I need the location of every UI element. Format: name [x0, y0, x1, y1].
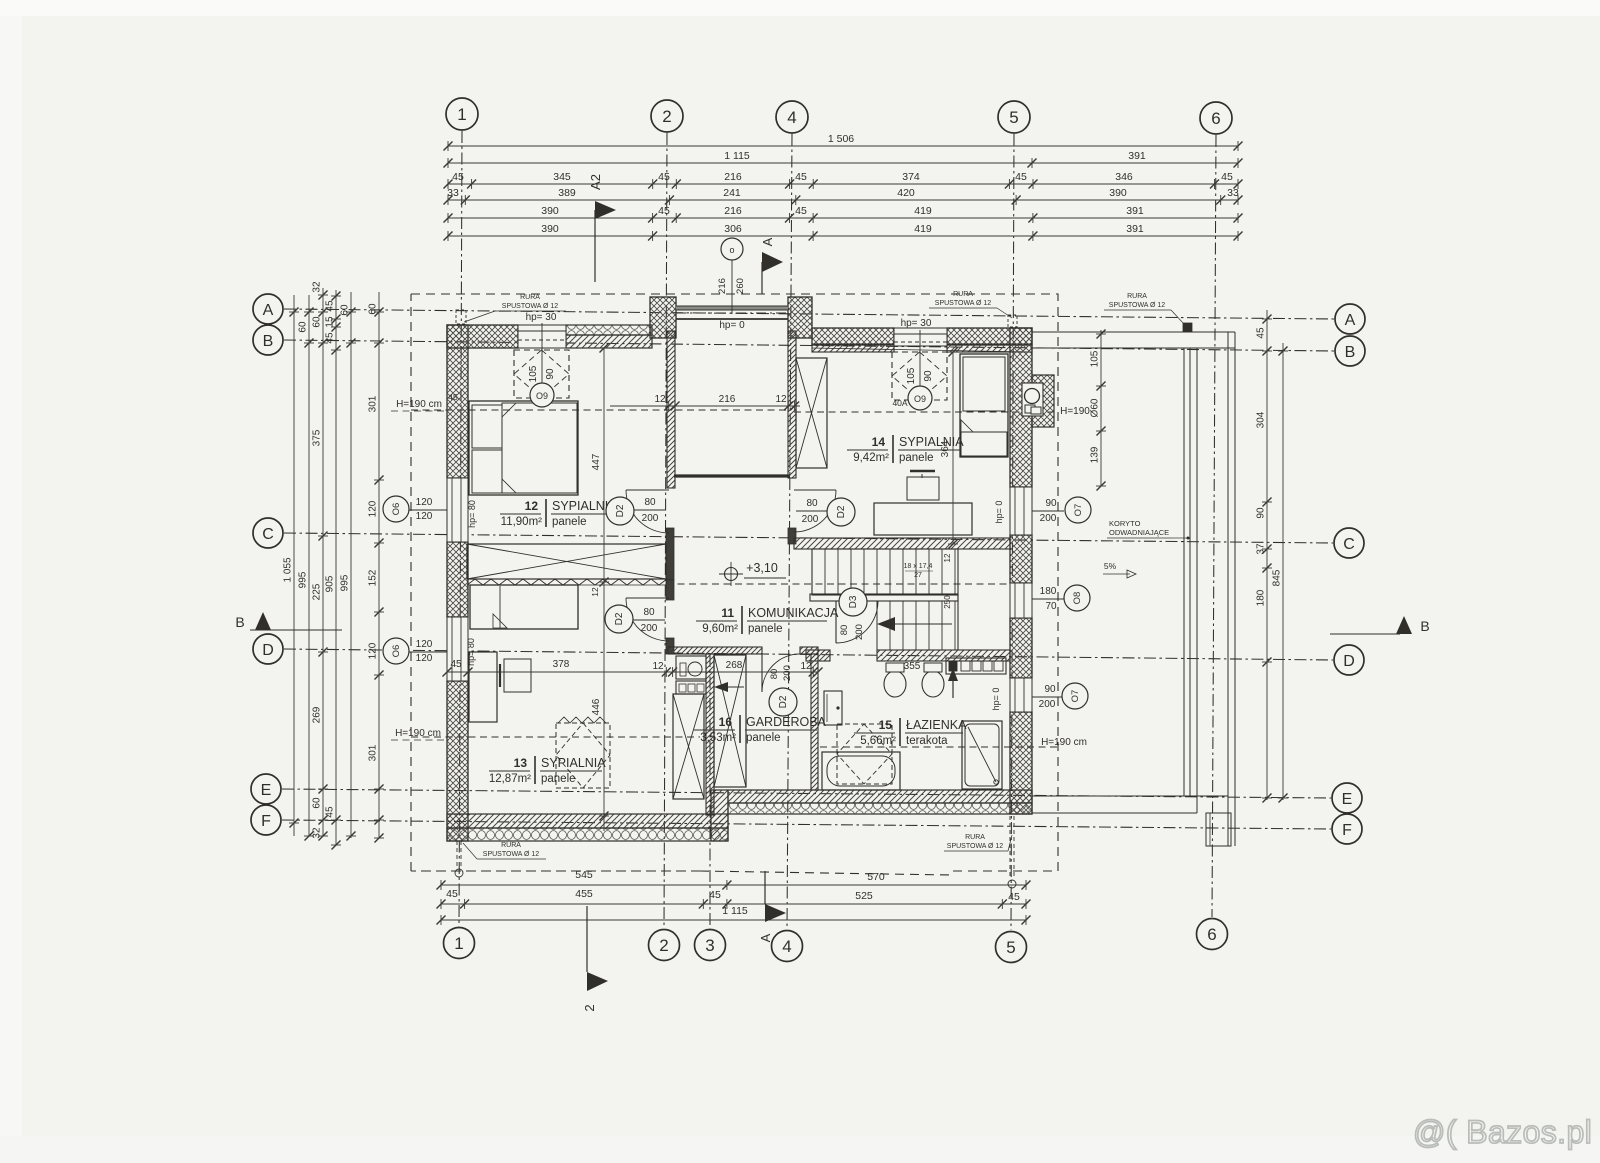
- svg-text:45: 45: [1221, 171, 1233, 183]
- svg-text:391: 391: [1126, 223, 1144, 235]
- svg-text:1 115: 1 115: [724, 150, 750, 162]
- svg-text:15: 15: [325, 316, 336, 328]
- svg-text:F: F: [1342, 822, 1352, 839]
- svg-text:45: 45: [1015, 171, 1027, 183]
- svg-text:4: 4: [782, 937, 791, 956]
- svg-text:200: 200: [782, 665, 793, 681]
- svg-text:80: 80: [769, 669, 780, 680]
- svg-text:F: F: [261, 813, 271, 830]
- svg-text:45: 45: [709, 889, 721, 901]
- svg-text:13: 13: [514, 756, 528, 770]
- svg-text:D: D: [262, 642, 274, 659]
- svg-text:H=190 cm: H=190 cm: [395, 728, 441, 739]
- svg-text:45: 45: [325, 806, 336, 818]
- svg-text:268: 268: [726, 660, 743, 671]
- svg-text:1 506: 1 506: [828, 133, 854, 145]
- svg-text:216: 216: [717, 278, 728, 294]
- svg-text:hp= 80: hp= 80: [466, 638, 476, 666]
- svg-text:D2: D2: [615, 504, 626, 517]
- svg-text:O6: O6: [391, 645, 402, 658]
- svg-text:C: C: [1343, 536, 1355, 553]
- svg-text:420: 420: [897, 187, 915, 199]
- svg-text:250: 250: [943, 595, 952, 609]
- svg-text:11,90m²: 11,90m²: [501, 516, 543, 528]
- svg-text:hp= 0: hp= 0: [991, 688, 1001, 711]
- svg-text:301: 301: [368, 744, 379, 761]
- svg-text:+3,10: +3,10: [746, 561, 778, 575]
- svg-text:216: 216: [719, 394, 736, 405]
- svg-text:378: 378: [553, 659, 570, 670]
- svg-text:216: 216: [724, 171, 742, 183]
- svg-text:panele: panele: [541, 773, 576, 785]
- svg-text:391: 391: [1128, 150, 1146, 162]
- svg-text:374: 374: [902, 171, 920, 183]
- svg-text:301: 301: [368, 395, 379, 412]
- svg-text:45: 45: [658, 205, 670, 217]
- svg-text:120: 120: [416, 511, 433, 522]
- svg-text:12: 12: [800, 661, 812, 672]
- svg-text:105: 105: [528, 365, 539, 382]
- svg-text:80: 80: [839, 625, 850, 636]
- svg-text:D2: D2: [778, 695, 789, 708]
- svg-text:Ø60: Ø60: [1090, 398, 1101, 417]
- svg-text:SPUSTOWA Ø 12: SPUSTOWA Ø 12: [935, 300, 992, 307]
- svg-text:KOMUNIKACJA: KOMUNIKACJA: [748, 606, 839, 620]
- svg-text:A: A: [263, 302, 274, 319]
- svg-text:3,53m²: 3,53m²: [700, 732, 736, 744]
- svg-text:16: 16: [719, 715, 733, 729]
- svg-text:SPUSTOWA Ø 12: SPUSTOWA Ø 12: [947, 843, 1004, 850]
- svg-text:12: 12: [654, 394, 666, 405]
- svg-text:RURA: RURA: [953, 291, 973, 298]
- svg-text:120: 120: [368, 642, 379, 659]
- svg-text:995: 995: [340, 574, 351, 591]
- svg-text:ŁAZIENKA: ŁAZIENKA: [906, 718, 967, 732]
- svg-text:O9: O9: [914, 394, 926, 404]
- svg-text:260: 260: [735, 278, 746, 294]
- svg-text:152: 152: [368, 569, 379, 586]
- svg-text:E: E: [261, 782, 272, 799]
- svg-text:2: 2: [662, 107, 671, 126]
- svg-text:RURA: RURA: [965, 834, 985, 841]
- svg-text:O6: O6: [391, 503, 402, 516]
- svg-text:D2: D2: [836, 505, 847, 518]
- svg-text:o: o: [729, 245, 734, 255]
- svg-text:570: 570: [867, 871, 885, 883]
- svg-text:525: 525: [855, 890, 873, 902]
- svg-text:12: 12: [652, 661, 664, 672]
- svg-text:O8: O8: [1072, 592, 1083, 605]
- svg-text:1: 1: [457, 105, 466, 124]
- svg-text:KORYTO: KORYTO: [1109, 519, 1141, 528]
- svg-text:391: 391: [1126, 205, 1144, 217]
- svg-text:12,87m²: 12,87m²: [489, 773, 531, 785]
- svg-text:12: 12: [525, 499, 539, 513]
- svg-text:200: 200: [802, 514, 819, 525]
- svg-text:12: 12: [943, 553, 952, 562]
- svg-text:216: 216: [724, 205, 742, 217]
- svg-text:12: 12: [590, 587, 600, 597]
- svg-text:90: 90: [545, 368, 556, 380]
- svg-text:845: 845: [1272, 569, 1283, 586]
- svg-text:terakota: terakota: [906, 735, 948, 747]
- svg-text:200: 200: [1039, 699, 1056, 710]
- svg-text:5%: 5%: [1104, 561, 1117, 571]
- svg-text:SPUSTOWA Ø 12: SPUSTOWA Ø 12: [502, 303, 559, 310]
- svg-text:33: 33: [1227, 187, 1239, 199]
- svg-text:32: 32: [312, 281, 323, 293]
- svg-text:120: 120: [416, 497, 433, 508]
- svg-text:304: 304: [1256, 411, 1267, 428]
- svg-text:200: 200: [1040, 513, 1057, 524]
- svg-text:GARDEROBA: GARDEROBA: [746, 715, 827, 729]
- svg-text:90: 90: [923, 370, 934, 382]
- svg-text:139: 139: [1090, 446, 1101, 463]
- svg-text:14: 14: [872, 435, 886, 449]
- svg-text:90: 90: [1256, 507, 1267, 519]
- svg-text:120: 120: [416, 639, 433, 650]
- svg-text:60: 60: [312, 316, 323, 328]
- svg-text:180: 180: [1256, 589, 1267, 606]
- svg-text:45: 45: [795, 205, 807, 217]
- svg-text:306: 306: [724, 223, 742, 235]
- svg-text:O7: O7: [1073, 504, 1084, 517]
- svg-text:80: 80: [643, 607, 655, 618]
- svg-text:hp= 0: hp= 0: [994, 501, 1004, 524]
- svg-text:60: 60: [312, 797, 323, 809]
- svg-text:panele: panele: [746, 732, 781, 744]
- svg-text:RURA: RURA: [501, 842, 521, 849]
- svg-text:345: 345: [553, 171, 571, 183]
- svg-text:18 x 17,4: 18 x 17,4: [904, 563, 933, 570]
- svg-text:ODWADNIAJĄCE: ODWADNIAJĄCE: [1109, 528, 1169, 537]
- svg-text:1: 1: [454, 934, 463, 953]
- svg-text:2: 2: [582, 1004, 597, 1011]
- svg-text:45: 45: [450, 659, 462, 670]
- svg-text:364: 364: [940, 440, 951, 457]
- svg-text:C: C: [262, 526, 274, 543]
- svg-text:447: 447: [591, 453, 602, 470]
- svg-text:6: 6: [1211, 109, 1220, 128]
- svg-text:B: B: [263, 333, 274, 350]
- svg-text:45: 45: [452, 171, 464, 183]
- svg-text:SYPIALNIA: SYPIALNIA: [899, 435, 964, 449]
- svg-text:6: 6: [1207, 925, 1216, 944]
- svg-text:45: 45: [795, 171, 807, 183]
- svg-text:419: 419: [914, 223, 932, 235]
- svg-text:45: 45: [448, 392, 458, 402]
- svg-text:45: 45: [1256, 327, 1267, 339]
- svg-text:H=190: H=190: [1060, 406, 1090, 417]
- svg-text:H=190 cm: H=190 cm: [1041, 737, 1087, 748]
- svg-text:45: 45: [658, 171, 670, 183]
- svg-text:A: A: [758, 933, 773, 942]
- svg-text:O7: O7: [1070, 690, 1081, 703]
- svg-text:hp= 0: hp= 0: [719, 320, 745, 331]
- svg-text:4: 4: [787, 108, 796, 127]
- svg-text:D: D: [1343, 653, 1355, 670]
- svg-text:1 115: 1 115: [722, 905, 748, 917]
- svg-text:355: 355: [904, 661, 921, 672]
- svg-text:32: 32: [312, 827, 323, 839]
- svg-text:241: 241: [723, 187, 741, 199]
- svg-text:3: 3: [705, 936, 714, 955]
- svg-text:375: 375: [312, 429, 323, 446]
- svg-text:389: 389: [558, 187, 576, 199]
- svg-text:B: B: [1345, 344, 1356, 361]
- svg-text:390: 390: [541, 223, 559, 235]
- svg-text:180: 180: [1040, 586, 1057, 597]
- svg-text:105: 105: [906, 367, 917, 384]
- svg-text:1 055: 1 055: [283, 557, 294, 582]
- svg-text:5,66m²: 5,66m²: [860, 735, 896, 747]
- svg-text:11: 11: [721, 606, 734, 620]
- svg-text:105: 105: [1090, 350, 1101, 367]
- svg-text:hp= 30: hp= 30: [901, 318, 932, 329]
- svg-text:419: 419: [914, 205, 932, 217]
- svg-text:120: 120: [416, 653, 433, 664]
- svg-text:B: B: [235, 614, 244, 630]
- svg-text:RURA: RURA: [520, 294, 540, 301]
- svg-text:90: 90: [1045, 498, 1057, 509]
- svg-text:45: 45: [325, 300, 336, 312]
- svg-text:E: E: [1342, 791, 1353, 808]
- svg-text:80: 80: [806, 498, 818, 509]
- svg-text:269: 269: [312, 706, 323, 723]
- svg-text:D2: D2: [614, 612, 625, 625]
- svg-text:12: 12: [775, 394, 787, 405]
- svg-text:B: B: [1420, 618, 1429, 634]
- svg-text:A: A: [1345, 312, 1356, 329]
- svg-text:33: 33: [447, 187, 459, 199]
- svg-text:200: 200: [854, 624, 865, 640]
- svg-text:panele: panele: [552, 516, 587, 528]
- svg-text:hp= 30: hp= 30: [526, 312, 557, 323]
- svg-text:@( Bazos.pl: @( Bazos.pl: [1413, 1114, 1592, 1150]
- svg-text:120: 120: [368, 500, 379, 517]
- svg-text:SPUSTOWA Ø 12: SPUSTOWA Ø 12: [1109, 302, 1166, 309]
- svg-text:A2: A2: [588, 174, 603, 190]
- svg-text:RURA: RURA: [1127, 293, 1147, 300]
- svg-text:hp= 80: hp= 80: [467, 500, 477, 528]
- svg-text:45: 45: [325, 332, 336, 344]
- svg-text:390: 390: [541, 205, 559, 217]
- svg-text:455: 455: [575, 888, 593, 900]
- svg-text:905: 905: [325, 575, 336, 592]
- svg-text:O9: O9: [536, 391, 548, 401]
- svg-text:45: 45: [1008, 891, 1020, 903]
- svg-text:60: 60: [340, 304, 351, 316]
- svg-text:2: 2: [659, 936, 668, 955]
- svg-text:panele: panele: [899, 452, 934, 464]
- svg-text:995: 995: [298, 571, 309, 588]
- svg-text:H=190 cm: H=190 cm: [396, 399, 442, 410]
- svg-text:446: 446: [591, 698, 602, 715]
- svg-text:5: 5: [1009, 108, 1018, 127]
- svg-text:60: 60: [298, 321, 309, 333]
- svg-text:60: 60: [368, 303, 379, 315]
- svg-text:225: 225: [312, 583, 323, 600]
- svg-text:390: 390: [1109, 187, 1127, 199]
- svg-text:45: 45: [446, 888, 458, 900]
- svg-text:SPUSTOWA Ø 12: SPUSTOWA Ø 12: [483, 851, 540, 858]
- svg-text:27: 27: [914, 572, 922, 579]
- svg-text:SYPIALNIA: SYPIALNIA: [541, 756, 606, 770]
- svg-text:9,42m²: 9,42m²: [853, 452, 889, 464]
- svg-text:5: 5: [1006, 938, 1015, 957]
- svg-text:200: 200: [642, 513, 659, 524]
- svg-text:9,60m²: 9,60m²: [702, 623, 738, 635]
- svg-text:70: 70: [1045, 601, 1057, 612]
- svg-text:37: 37: [1256, 543, 1267, 555]
- svg-text:90: 90: [1044, 684, 1056, 695]
- svg-text:A: A: [760, 237, 775, 246]
- svg-text:15: 15: [879, 718, 893, 732]
- svg-text:200: 200: [641, 623, 658, 634]
- svg-text:346: 346: [1115, 171, 1133, 183]
- svg-text:40A: 40A: [892, 398, 907, 408]
- svg-text:panele: panele: [748, 623, 783, 635]
- svg-text:D3: D3: [848, 595, 859, 608]
- svg-text:80: 80: [644, 497, 656, 508]
